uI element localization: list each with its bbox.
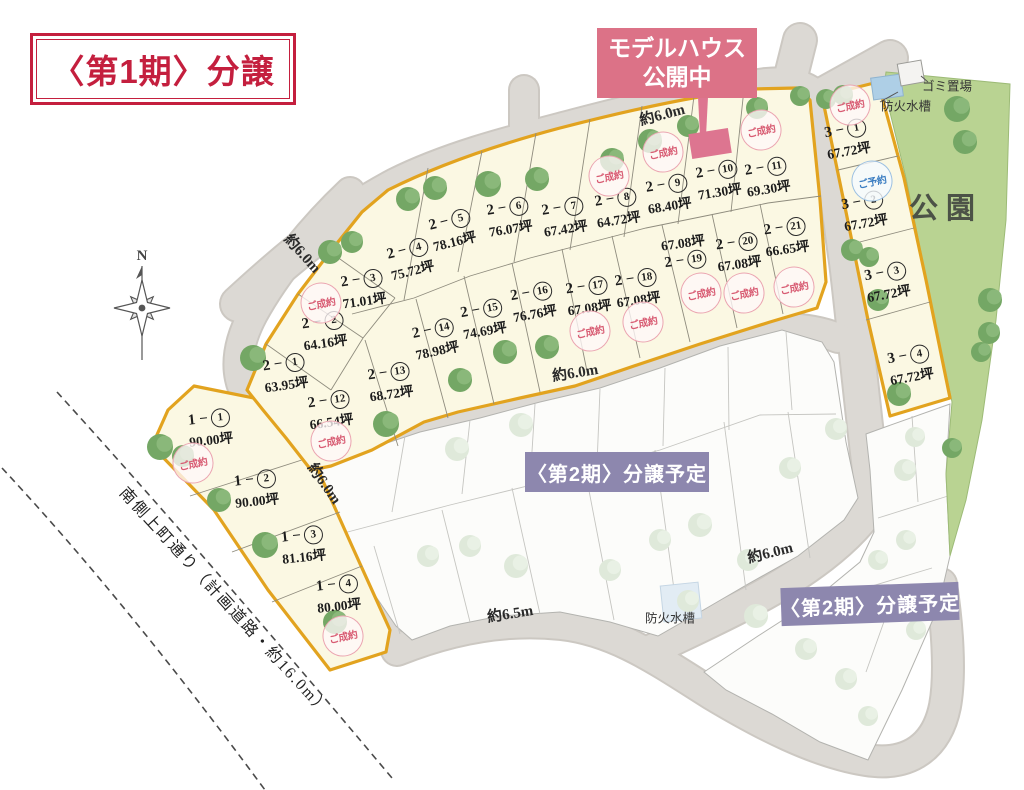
tree-icon	[913, 621, 925, 633]
model-house-banner-line1: モデルハウス	[608, 34, 746, 63]
lot-label-2-3: 2 −371.01坪	[339, 268, 388, 313]
park-label: 公園	[909, 185, 983, 227]
lot-label-1-3: 1 −381.16坪	[279, 524, 327, 567]
lot-block-prefix: 2 −	[664, 253, 686, 273]
tree-icon	[797, 87, 809, 99]
lot-block-prefix: 2 −	[644, 177, 666, 197]
lot-label-3-4: 3 −467.72坪	[885, 343, 935, 389]
lot-label-2-20: 2 −2067.08坪	[714, 231, 763, 276]
lot-label-2-7: 2 −767.42坪	[539, 195, 588, 240]
lot-block-prefix: 2 −	[540, 200, 562, 220]
tree-icon	[607, 560, 621, 574]
lot-label-2-10: 2 −1071.30坪	[693, 158, 742, 203]
tree-icon	[534, 169, 549, 184]
tree-icon	[457, 370, 472, 385]
phase2-banner-bottom-right: 〈第2期〉分譲予定	[780, 582, 959, 626]
lot-label-2-19: 2 −1967.08坪	[660, 229, 709, 274]
tree-icon	[833, 419, 847, 433]
lot-label-2-13: 2 −1368.72坪	[366, 361, 415, 406]
lot-label-2-21: 2 −2166.65坪	[762, 216, 811, 261]
tree-icon	[866, 248, 878, 260]
phase1-title-box: 〈第1期〉分譲	[30, 33, 296, 105]
garbage-square	[897, 60, 924, 86]
tree-icon	[962, 132, 977, 147]
lot-circled-number: 3	[303, 524, 324, 545]
tree-icon	[425, 546, 439, 560]
tree-icon	[502, 342, 517, 357]
compass-n-label: N	[137, 248, 148, 264]
tree-icon	[949, 439, 961, 451]
tree-icon	[697, 515, 712, 530]
lot-block-prefix: 1 −	[280, 528, 301, 547]
fire-tank-bottom-label: 防火水槽	[645, 608, 695, 627]
tree-icon	[903, 531, 915, 543]
lot-block-prefix: 1 −	[315, 577, 336, 596]
tree-icon	[513, 556, 528, 571]
tree-icon	[865, 707, 877, 719]
tree-icon	[156, 436, 172, 452]
map-geometry: N	[0, 0, 1024, 790]
tree-icon	[327, 242, 342, 257]
tree-icon	[953, 98, 969, 114]
lot-block-prefix: 3 −	[863, 265, 885, 285]
lot-block-prefix: 2 −	[694, 163, 716, 183]
lot-block-prefix: 2 −	[763, 220, 785, 240]
lot-block-prefix: 1 −	[233, 472, 254, 491]
lot-block-prefix: 2 −	[743, 160, 765, 180]
lot-label-1-2: 1 −290.00坪	[232, 468, 280, 511]
tree-icon	[484, 173, 500, 189]
lot-label-2-1: 2 −163.95坪	[261, 352, 310, 397]
lot-label-1-4: 1 −480.00坪	[314, 573, 362, 616]
tree-icon	[875, 551, 887, 563]
lot-label-2-9: 2 −968.40坪	[643, 172, 692, 217]
lot-label-2-11: 2 −1169.30坪	[742, 155, 791, 200]
compass-rose: N	[114, 248, 170, 360]
lot-block-prefix: 2 −	[262, 356, 284, 376]
tree-icon	[843, 669, 857, 683]
tree-icon	[902, 460, 916, 474]
tree-icon	[803, 639, 817, 653]
lot-label-2-6: 2 −676.07坪	[484, 195, 533, 240]
lot-block-prefix: 2 −	[459, 302, 481, 322]
tree-icon	[787, 458, 801, 472]
tree-icon	[685, 116, 699, 130]
tree-icon	[382, 413, 398, 429]
lot-label-2-16: 2 −1676.76坪	[508, 280, 558, 326]
tree-icon	[753, 606, 768, 621]
lot-block-prefix: 3 −	[823, 122, 845, 142]
garbage-label: ゴミ置場	[922, 76, 972, 95]
lot-block-prefix: 2 −	[367, 365, 389, 385]
phase2-banner-middle: 〈第2期〉分譲予定	[525, 452, 709, 492]
tree-icon	[657, 530, 671, 544]
tree-icon	[454, 439, 469, 454]
model-house-banner: モデルハウス 公開中	[597, 28, 757, 98]
subdivision-map: N 〈第1期〉分譲 モデルハウス 公開中 〈第2期〉分譲予定 〈第2期〉分譲予定…	[0, 0, 1024, 790]
tree-icon	[987, 290, 1002, 305]
lot-block-prefix: 3 −	[886, 348, 908, 368]
lot-block-prefix: 2 −	[565, 279, 587, 299]
tree-icon	[261, 534, 277, 550]
tree-icon	[405, 189, 420, 204]
lot-circled-number: 19	[686, 249, 707, 270]
tree-icon	[349, 232, 363, 246]
lot-block-prefix: 2 −	[307, 393, 329, 413]
tree-icon	[986, 323, 1000, 337]
fire-tank-top-label: 防火水槽	[881, 96, 931, 115]
tree-icon	[432, 178, 447, 193]
tree-icon	[912, 428, 924, 440]
tree-icon	[467, 536, 481, 550]
lot-circled-number: 2	[256, 468, 277, 489]
lot-block-prefix: 2 −	[340, 272, 362, 292]
tree-icon	[978, 343, 990, 355]
lot-circled-number: 1	[210, 407, 231, 428]
lot-label-2-15: 2 −1574.69坪	[458, 297, 508, 343]
tree-icon	[216, 490, 231, 505]
lot-block-prefix: 2 −	[715, 235, 737, 255]
lot-block-prefix: 1 −	[187, 411, 208, 430]
model-house-banner-line2: 公開中	[643, 63, 712, 92]
tree-icon	[518, 415, 533, 430]
tree-icon	[544, 337, 559, 352]
lot-block-prefix: 2 −	[485, 200, 507, 220]
lot-label-3-3: 3 −367.72坪	[862, 260, 912, 306]
lot-circled-number: 4	[338, 573, 359, 594]
lot-block-prefix: 2 −	[614, 271, 636, 291]
tree-icon	[685, 591, 699, 605]
lot-block-prefix: 2 −	[509, 285, 531, 305]
phase1-title: 〈第1期〉分譲	[36, 39, 290, 99]
